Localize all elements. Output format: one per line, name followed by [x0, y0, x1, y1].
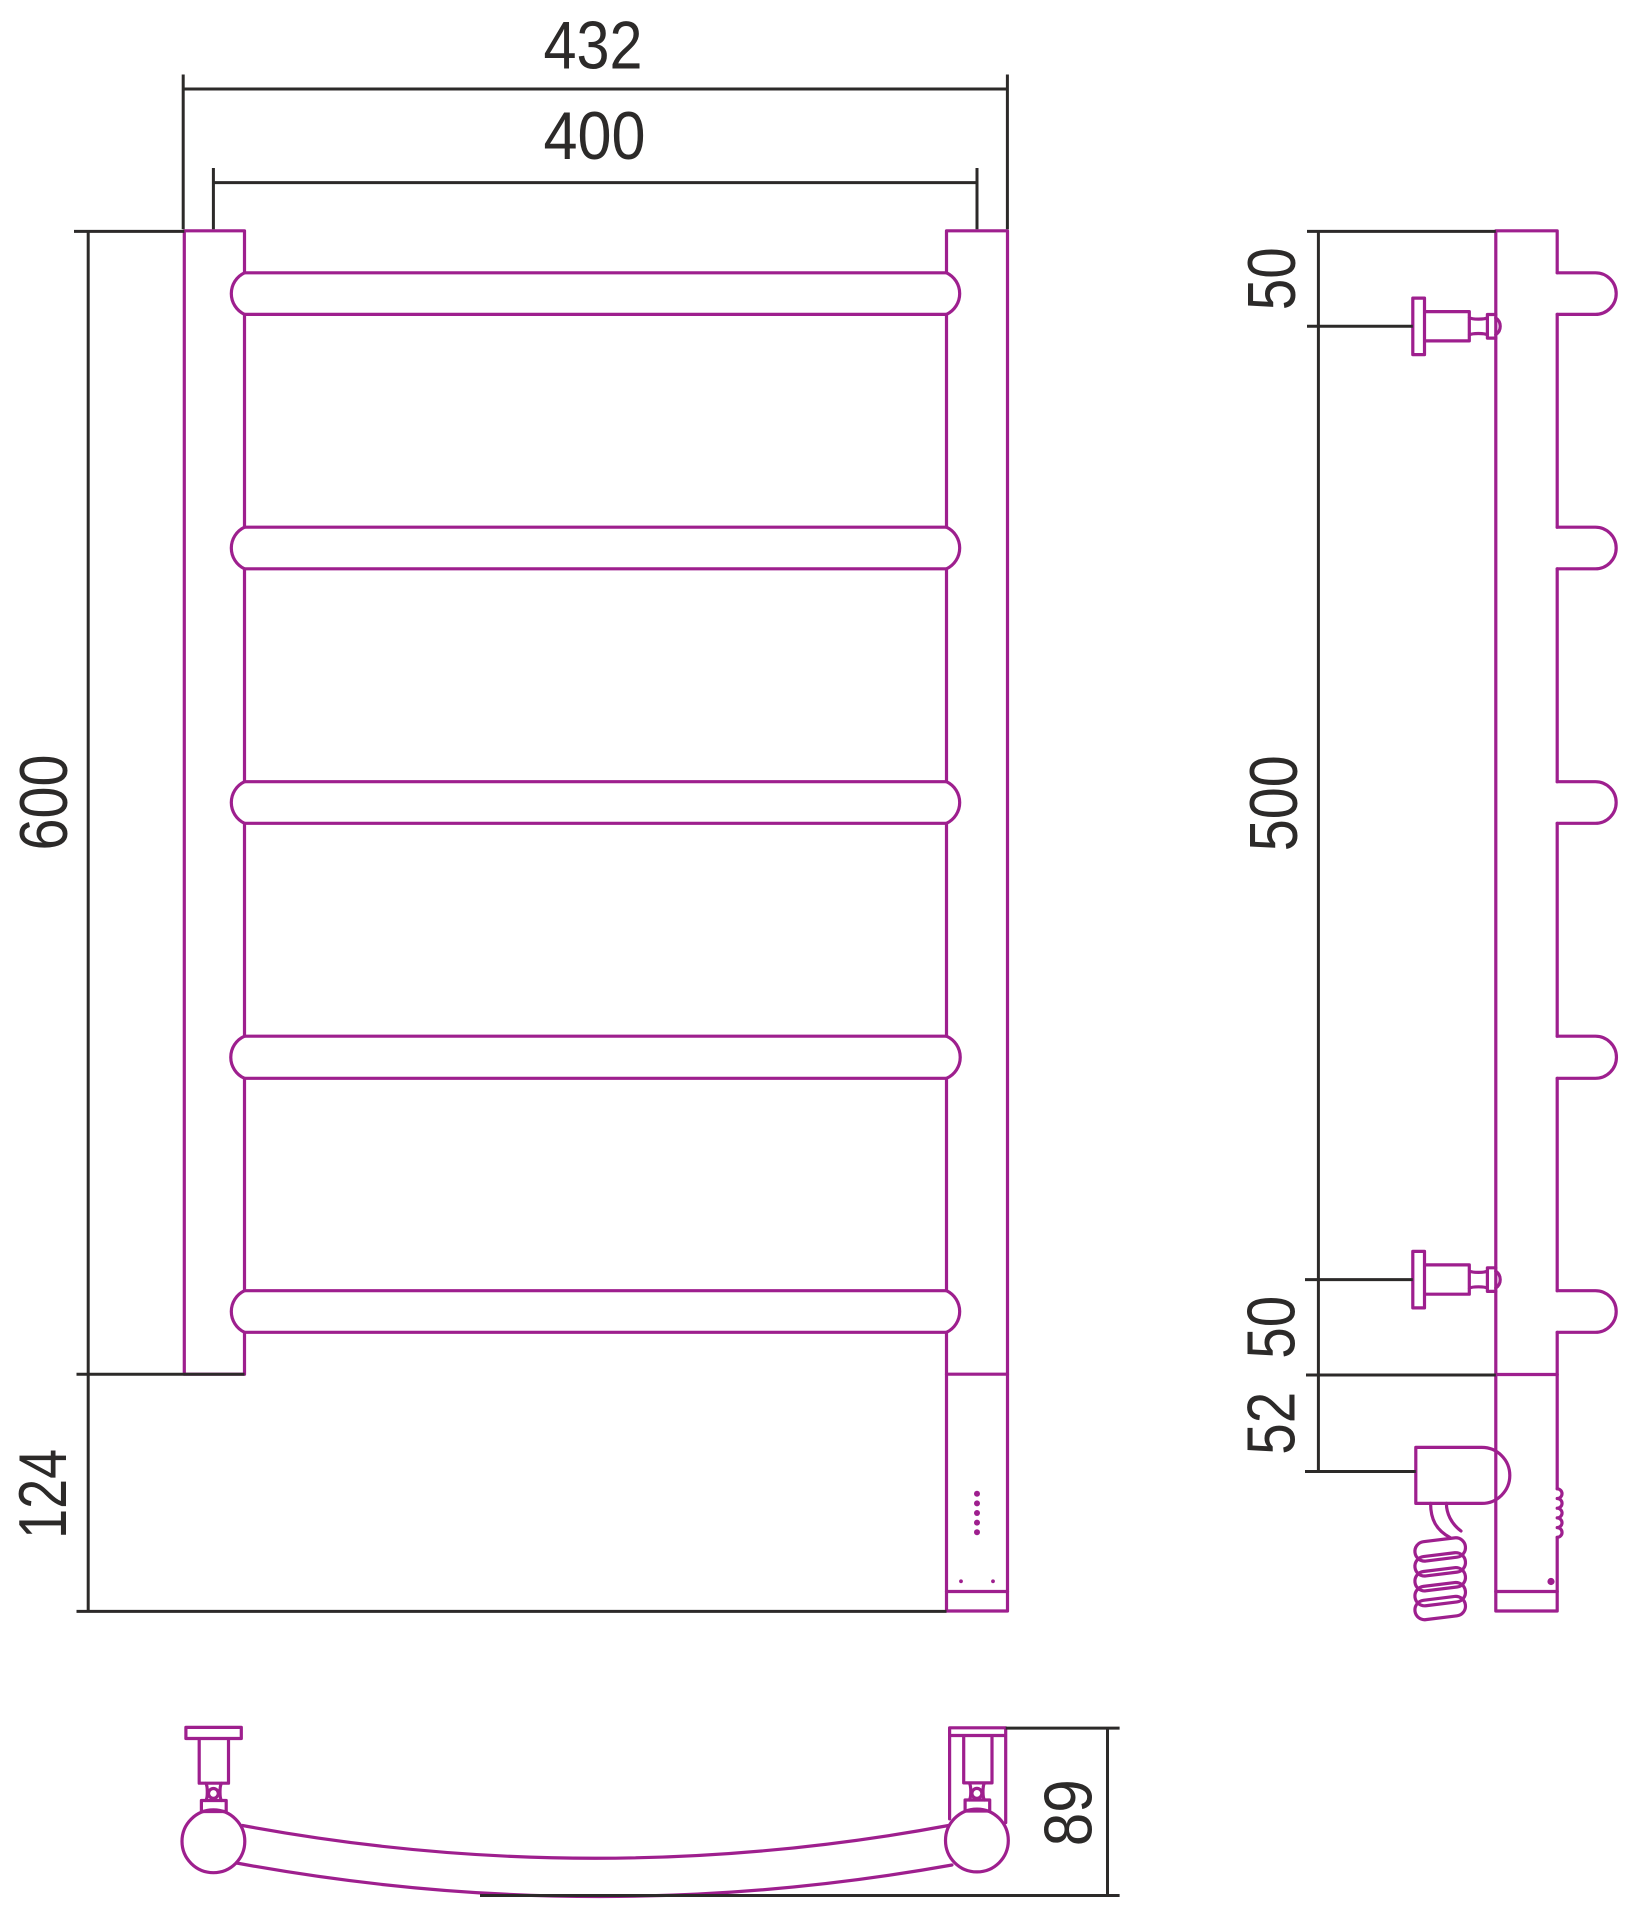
svg-text:89: 89 — [1031, 1779, 1107, 1846]
svg-text:50: 50 — [1234, 1296, 1310, 1359]
svg-text:400: 400 — [544, 98, 646, 174]
svg-text:52: 52 — [1234, 1392, 1310, 1455]
svg-text:600: 600 — [6, 755, 82, 851]
svg-text:500: 500 — [1236, 755, 1312, 851]
svg-text:124: 124 — [5, 1449, 81, 1539]
svg-text:50: 50 — [1234, 247, 1310, 310]
svg-text:432: 432 — [544, 8, 643, 84]
